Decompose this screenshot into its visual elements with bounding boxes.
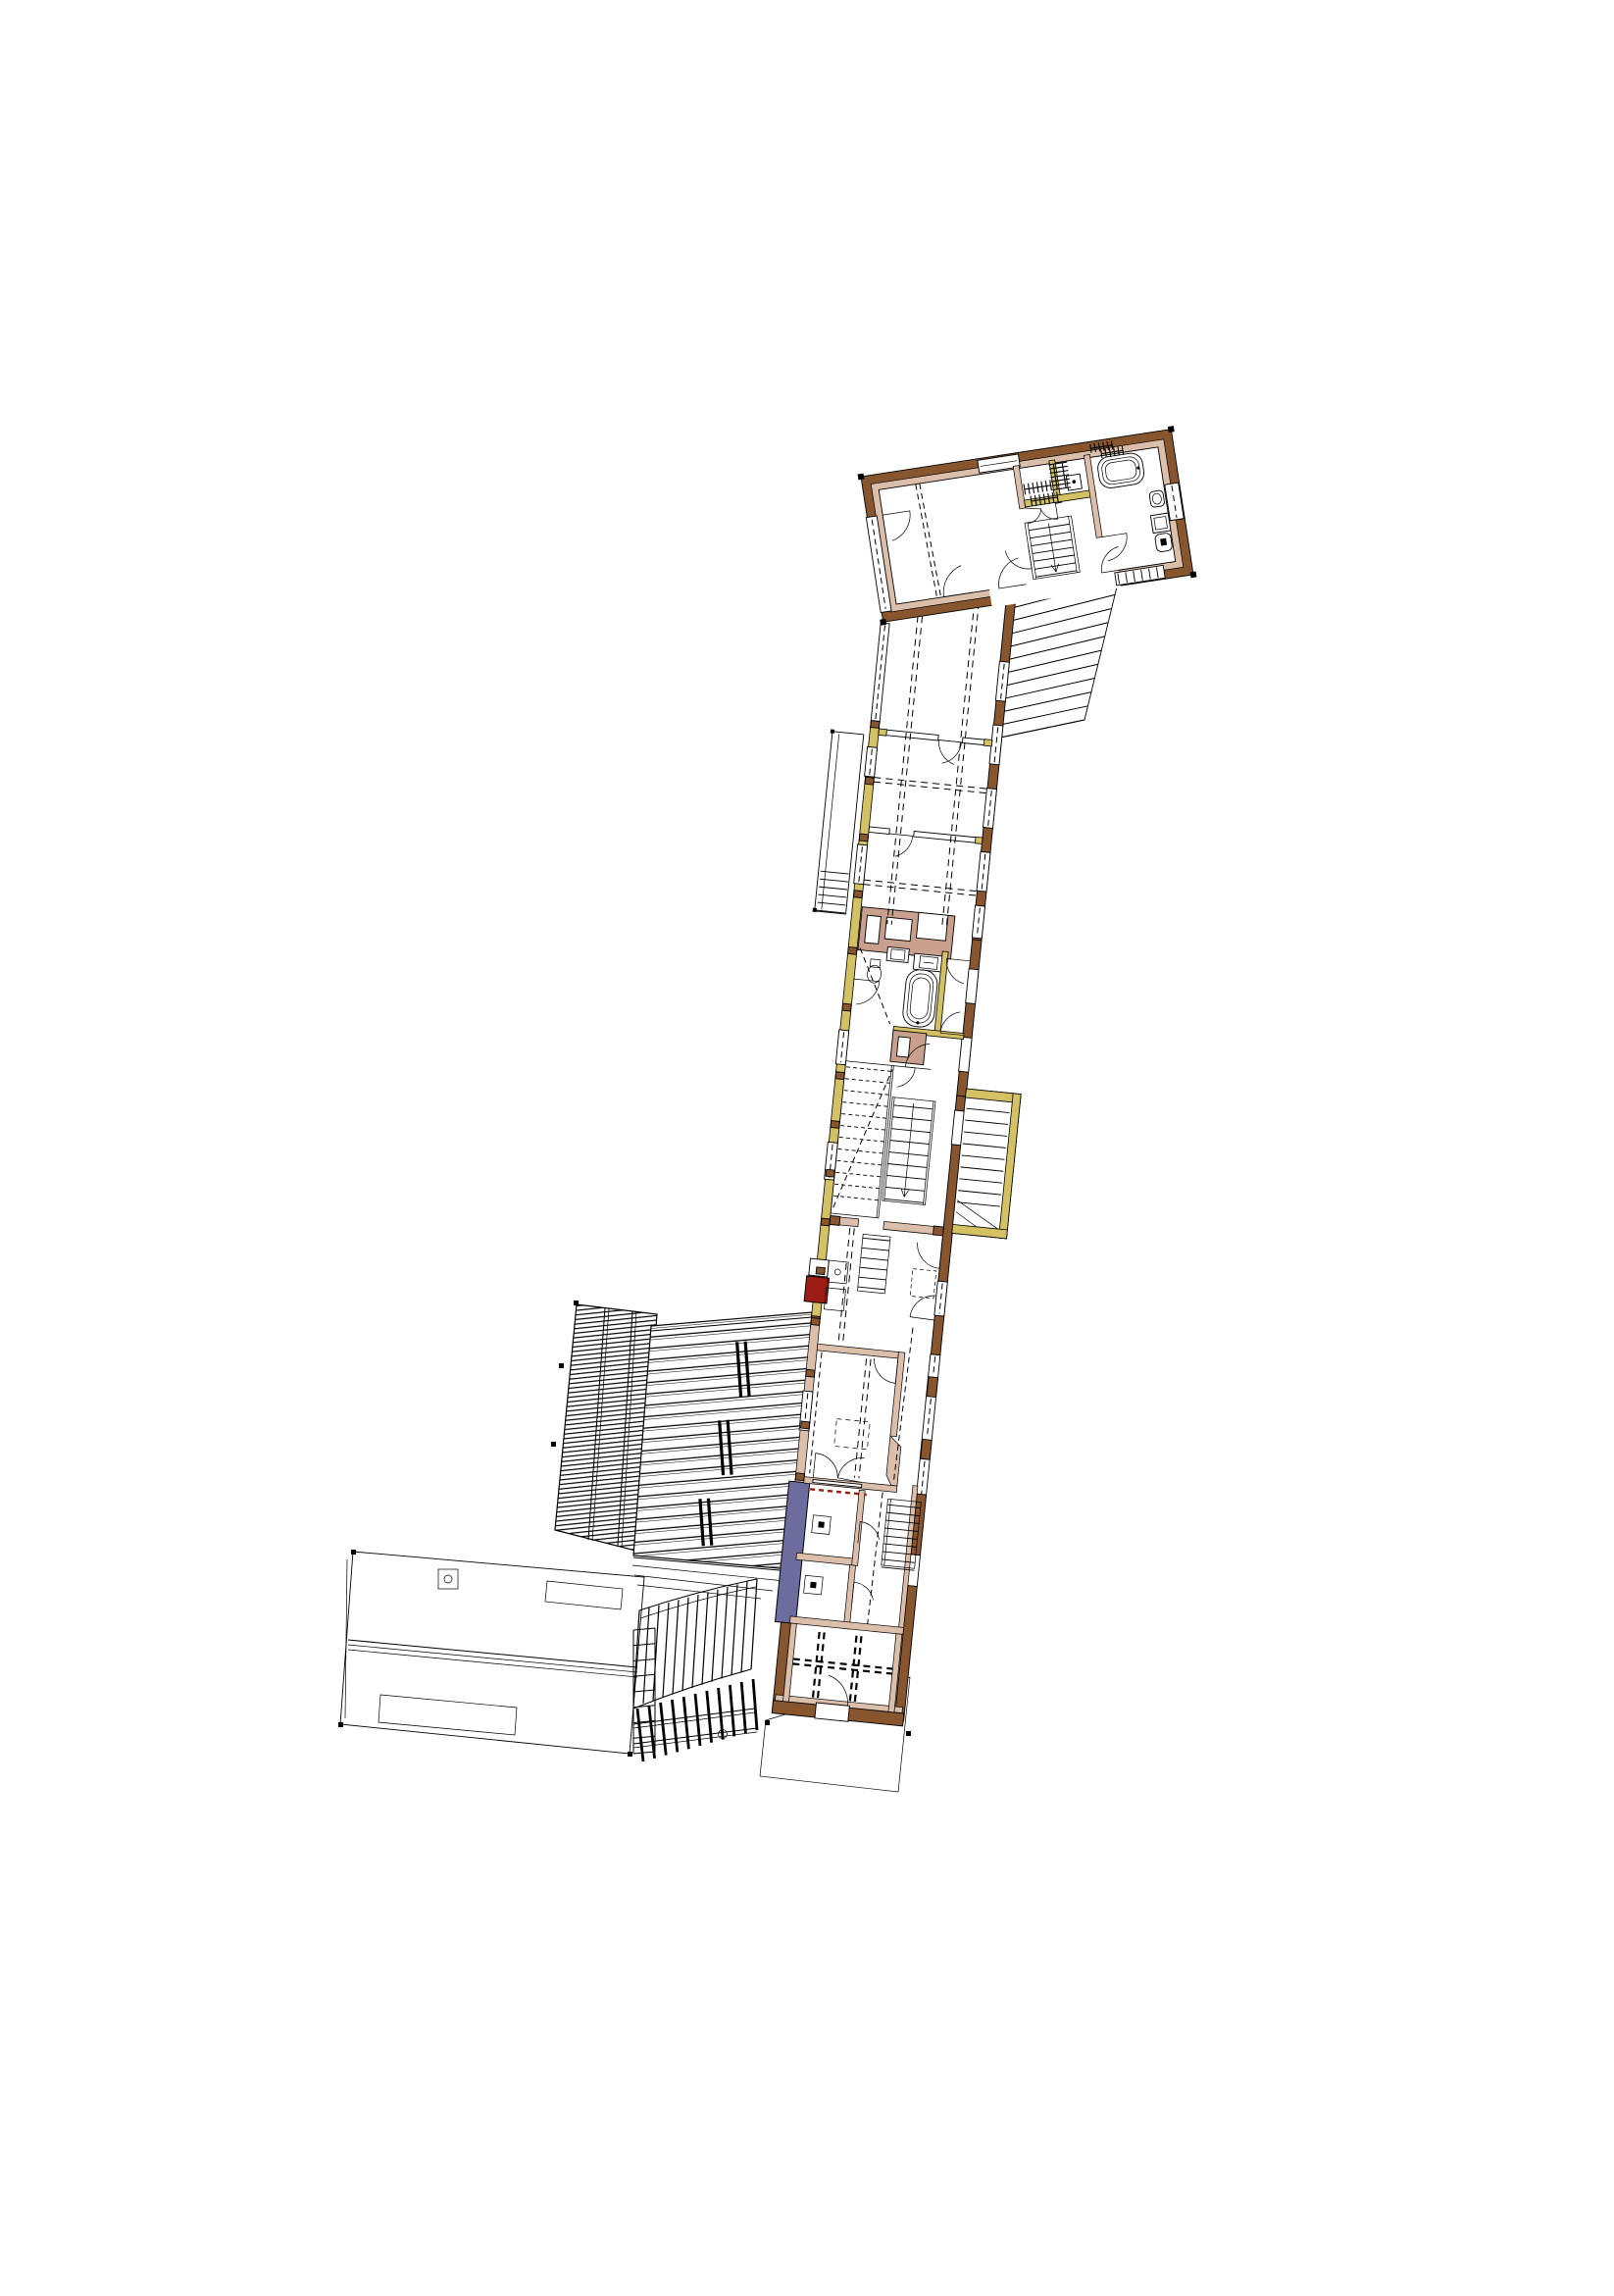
timber-post xyxy=(821,1218,830,1226)
timber-post xyxy=(826,1169,834,1177)
timber-post xyxy=(859,834,868,842)
timber-post xyxy=(811,1318,820,1326)
washbasin-counter xyxy=(886,946,909,962)
timber-post xyxy=(871,721,880,729)
annex-roof-outline xyxy=(340,1552,644,1754)
timber-post xyxy=(795,1473,804,1481)
timber-post xyxy=(865,777,874,785)
bathtub xyxy=(902,968,939,1028)
timber-post xyxy=(848,946,857,954)
timber-post xyxy=(800,1421,809,1429)
timber-post xyxy=(831,1121,839,1129)
south-annex-roof xyxy=(338,1550,644,1757)
masonry-chimney-block xyxy=(890,1030,927,1064)
shower-tray xyxy=(1150,513,1171,534)
paper xyxy=(0,0,1614,2296)
timber-post xyxy=(842,1003,851,1011)
washbasin xyxy=(1149,490,1165,508)
timber-post xyxy=(816,1267,825,1275)
floor-plan-sheet xyxy=(0,0,1614,2296)
floor-plan-drawing xyxy=(0,0,1614,2296)
timber-post xyxy=(853,891,862,898)
timber-post xyxy=(835,1072,844,1080)
timber-post xyxy=(806,1369,815,1377)
